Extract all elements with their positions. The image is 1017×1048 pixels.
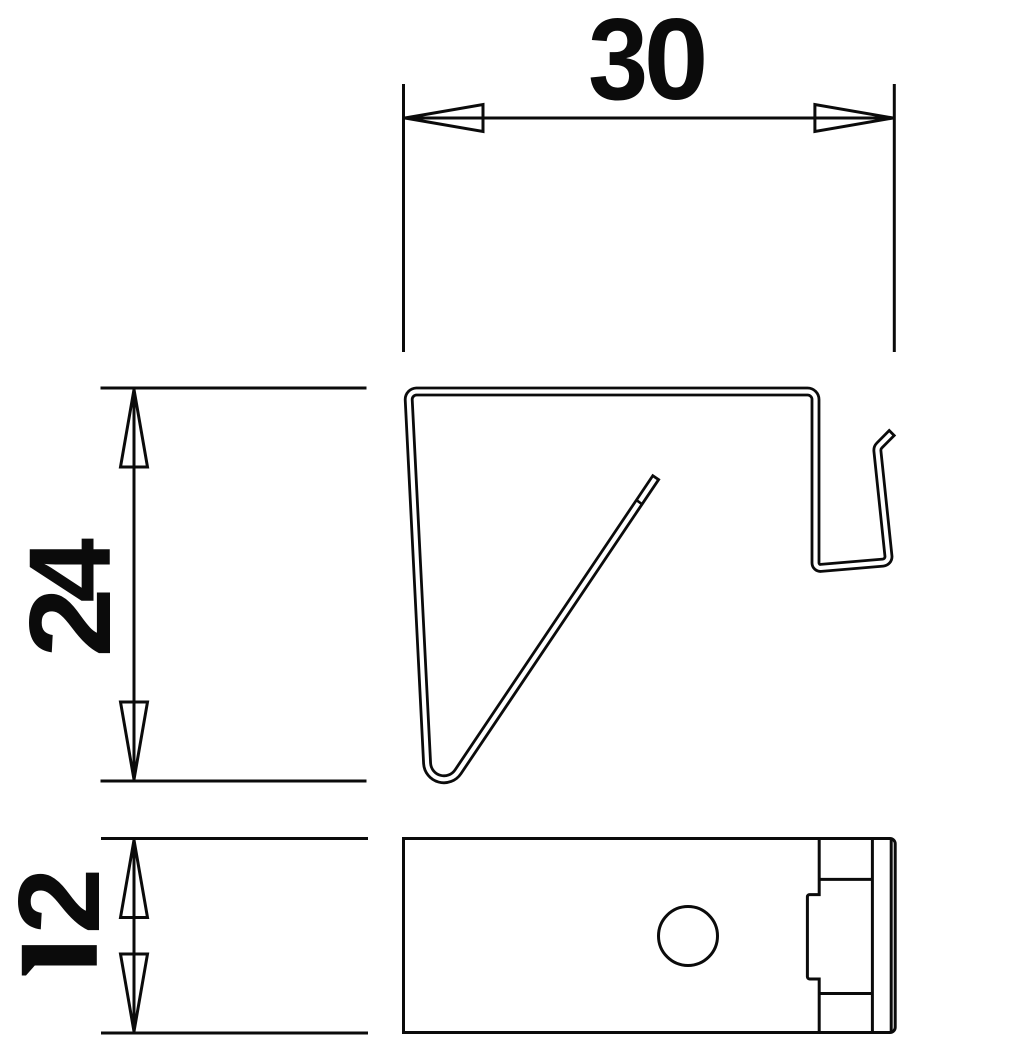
svg-text:0: 0 [644, 0, 709, 124]
svg-text:2: 2 [0, 868, 124, 934]
svg-text:3: 3 [588, 0, 648, 124]
svg-text:2: 2 [5, 588, 135, 658]
